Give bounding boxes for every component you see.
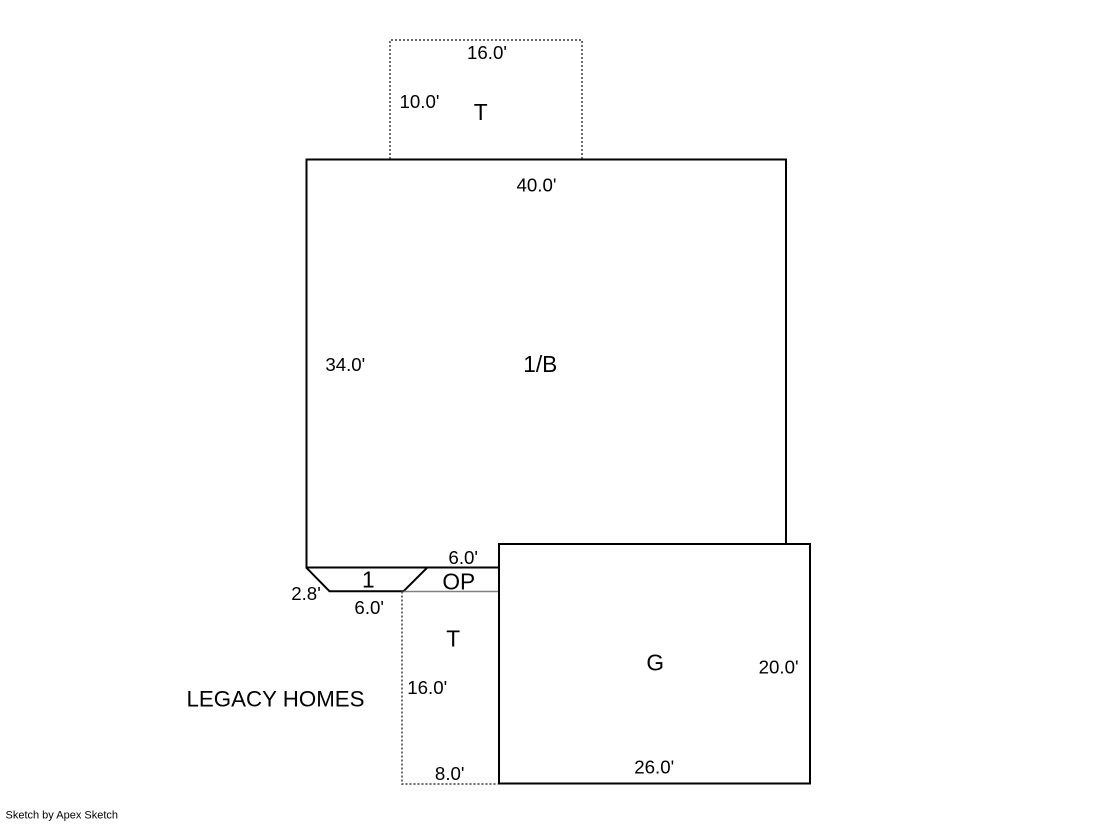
svg-text:1: 1	[362, 566, 375, 592]
svg-text:10.0': 10.0'	[400, 91, 440, 112]
svg-text:34.0': 34.0'	[325, 354, 365, 375]
svg-text:2.8': 2.8'	[291, 583, 321, 604]
svg-text:T: T	[446, 626, 460, 652]
svg-text:OP: OP	[442, 569, 475, 595]
svg-text:16.0': 16.0'	[407, 677, 447, 698]
svg-text:20.0': 20.0'	[759, 656, 799, 677]
svg-text:8.0': 8.0'	[435, 763, 465, 784]
svg-text:LEGACY HOMES: LEGACY HOMES	[187, 686, 365, 711]
svg-text:26.0': 26.0'	[634, 756, 674, 777]
svg-text:40.0': 40.0'	[517, 174, 557, 195]
svg-text:16.0': 16.0'	[467, 42, 507, 63]
svg-text:G: G	[646, 649, 664, 675]
svg-text:Sketch by Apex Sketch: Sketch by Apex Sketch	[6, 810, 119, 822]
svg-text:6.0': 6.0'	[448, 547, 478, 568]
svg-text:T: T	[474, 99, 488, 125]
svg-text:1/B: 1/B	[523, 351, 557, 377]
svg-text:6.0': 6.0'	[354, 597, 384, 618]
